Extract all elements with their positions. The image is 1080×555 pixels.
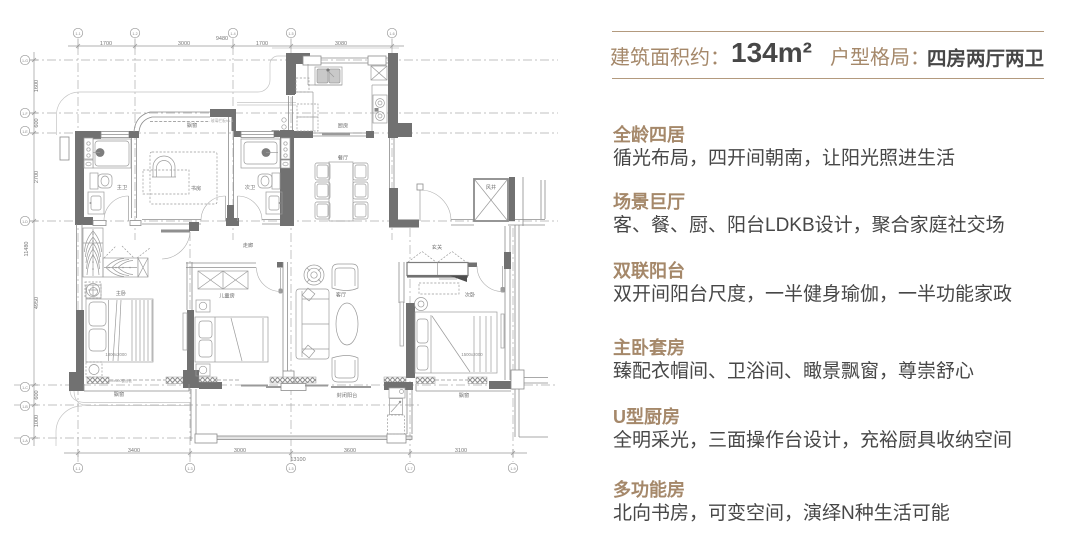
svg-text:1-E: 1-E: [22, 130, 28, 134]
svg-text:书房: 书房: [191, 184, 201, 192]
svg-text:飘窗: 飘窗: [187, 121, 197, 129]
svg-text:2700: 2700: [34, 171, 40, 183]
svg-text:玄关: 玄关: [432, 243, 442, 251]
svg-text:1-F: 1-F: [22, 112, 28, 116]
svg-text:封闭阳台: 封闭阳台: [337, 391, 358, 399]
svg-text:次卫: 次卫: [245, 183, 255, 191]
svg-text:1-1: 1-1: [75, 467, 80, 471]
svg-text:1-5: 1-5: [288, 467, 293, 471]
svg-text:11480: 11480: [24, 242, 30, 257]
svg-text:3600: 3600: [344, 448, 356, 454]
svg-text:1-3: 1-3: [187, 467, 192, 471]
svg-text:600: 600: [34, 118, 40, 127]
svg-text:客厅: 客厅: [336, 291, 346, 299]
svg-text:次卧: 次卧: [465, 291, 475, 299]
svg-text:主卧: 主卧: [116, 289, 126, 297]
svg-text:1-C: 1-C: [22, 386, 28, 390]
svg-text:3100: 3100: [455, 448, 467, 454]
svg-text:走廊: 走廊: [243, 241, 253, 249]
svg-text:600x600窗台板: 600x600窗台板: [108, 378, 132, 383]
svg-text:餐厅: 餐厅: [338, 154, 348, 162]
svg-text:儿童房: 儿童房: [219, 292, 235, 300]
svg-text:1-A: 1-A: [22, 439, 28, 443]
svg-text:风井: 风井: [486, 183, 496, 191]
svg-text:1-7: 1-7: [407, 467, 412, 471]
svg-text:1-9: 1-9: [510, 467, 515, 471]
svg-text:13100: 13100: [290, 457, 305, 463]
svg-text:1-B: 1-B: [22, 405, 28, 409]
svg-text:1800x2000: 1800x2000: [105, 352, 127, 357]
svg-text:飘窗: 飘窗: [459, 391, 469, 399]
svg-text:玻璃栏板h1.1: 玻璃栏板h1.1: [211, 118, 234, 123]
svg-text:1000: 1000: [34, 415, 40, 427]
svg-text:主卫: 主卫: [117, 183, 127, 191]
svg-text:600: 600: [34, 390, 40, 399]
svg-text:1-D: 1-D: [22, 220, 28, 224]
svg-text:1500x2000: 1500x2000: [461, 352, 483, 357]
svg-text:3400: 3400: [128, 448, 140, 454]
svg-text:厨房: 厨房: [338, 122, 348, 130]
svg-text:飘窗: 飘窗: [114, 390, 124, 398]
svg-text:4950: 4950: [34, 297, 40, 309]
svg-text:3000: 3000: [234, 448, 246, 454]
